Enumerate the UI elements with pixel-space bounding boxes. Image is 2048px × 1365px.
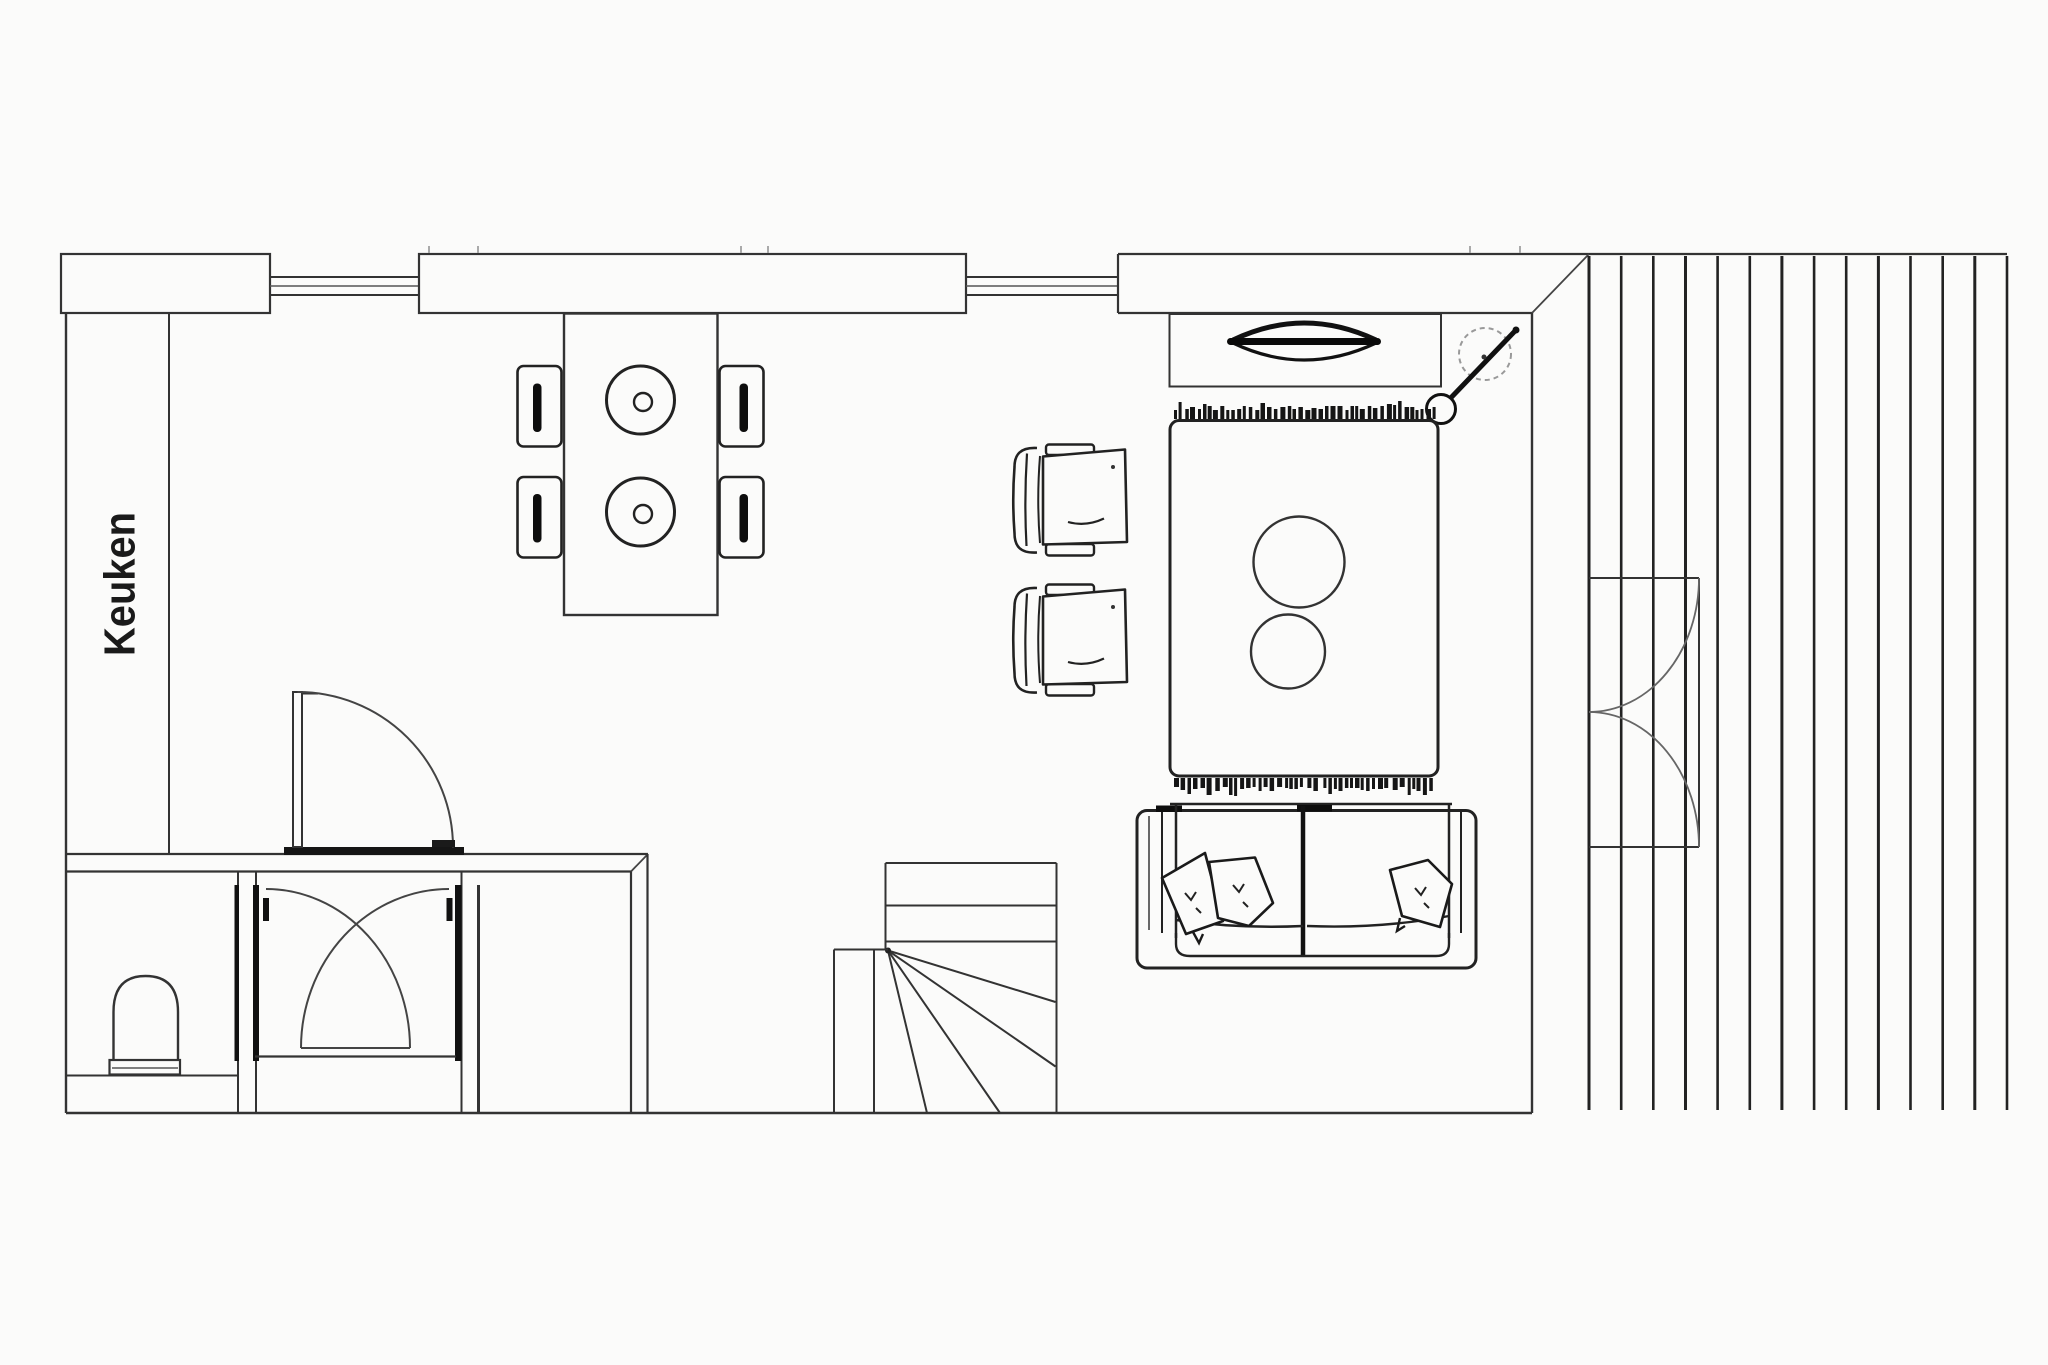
svg-text:Keuken: Keuken [96,512,145,656]
